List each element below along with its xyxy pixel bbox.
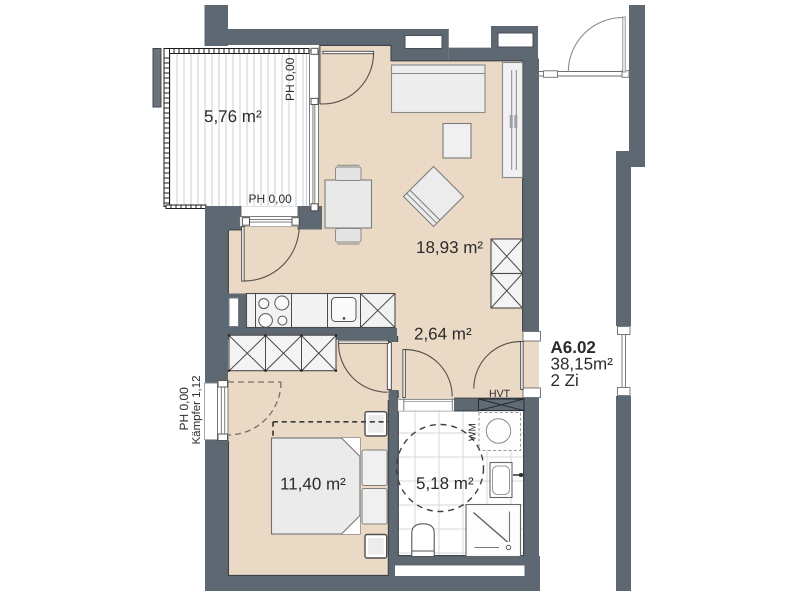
svg-text:11,40 m²: 11,40 m² xyxy=(280,475,346,494)
svg-text:HVT: HVT xyxy=(489,388,511,400)
svg-text:5,76 m²: 5,76 m² xyxy=(204,107,262,126)
svg-text:WM: WM xyxy=(468,423,479,441)
svg-text:2,64 m²: 2,64 m² xyxy=(414,325,472,344)
svg-text:PH 0,00: PH 0,00 xyxy=(177,387,191,431)
svg-text:Kämpfer 1,12: Kämpfer 1,12 xyxy=(191,375,203,444)
svg-text:PH 0,00: PH 0,00 xyxy=(283,57,297,101)
svg-text:18,93 m²: 18,93 m² xyxy=(416,238,483,257)
svg-text:PH 0,00: PH 0,00 xyxy=(248,192,292,206)
svg-text:2 Zi: 2 Zi xyxy=(550,371,578,390)
svg-text:5,18 m²: 5,18 m² xyxy=(416,474,474,493)
